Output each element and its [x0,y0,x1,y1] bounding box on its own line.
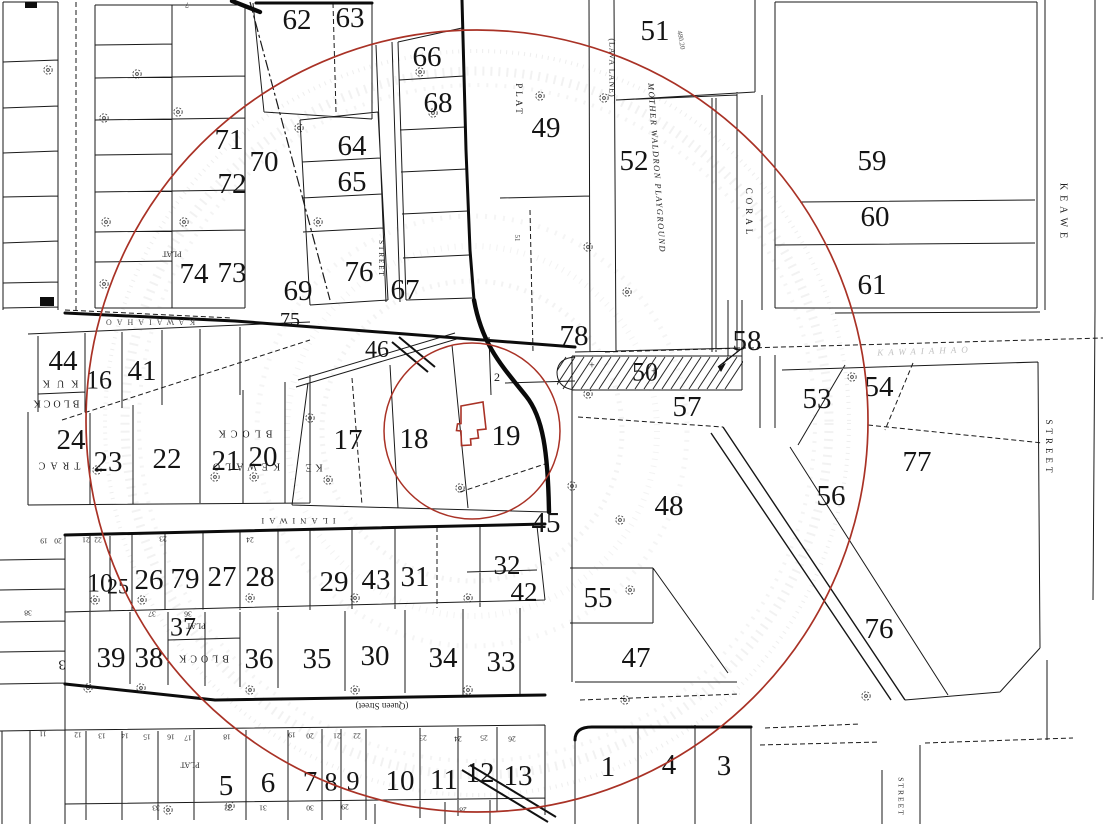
survey-circle-icon [539,95,542,98]
survey-circle-icon [624,699,627,702]
map-label: 60 [861,201,890,233]
map-label: 19 [288,731,296,740]
map-label: 31 [401,561,430,593]
map-label: MOTHER WALDRON PLAYGROUND [646,82,668,254]
map-label: 17 [334,424,363,456]
map-label: 54 [865,371,895,403]
map-label: 33 [487,646,516,678]
map-label: 17 [184,734,192,743]
map-label: 62 [283,4,312,36]
map-label: 48 [655,490,684,522]
survey-circle-icon [253,476,256,479]
map-label: 26 [135,564,164,596]
survey-circle-icon [862,692,870,700]
map-label: 12 [74,731,82,740]
map-label: 23 [159,535,167,544]
survey-circle-icon [138,596,146,604]
map-label: 55 [584,582,613,614]
map-label: 33 [152,804,160,813]
survey-circle-icon [351,686,359,694]
map-label: 61 [858,269,887,301]
map-label: 52 [620,145,649,177]
map-label: 2 [494,370,500,384]
survey-circle-icon [298,127,301,130]
map-label: 71 [215,124,244,156]
survey-circle-icon [584,390,592,398]
map-label: 22 [94,536,102,545]
map-label: 38 [24,609,32,618]
survey-circle-icon [467,597,470,600]
survey-circle-icon [183,221,186,224]
map-label: (Queen Street) [356,701,409,711]
survey-circle-icon [246,594,254,602]
survey-circle-icon [851,376,854,379]
map-label: 19 [40,537,48,546]
survey-circle-icon [327,479,330,482]
map-label: 73 [218,257,247,289]
map-label: 68 [424,87,453,119]
map-label: 7 [185,1,189,10]
map-label: 26 [508,735,516,744]
map-label: STREET [377,240,385,278]
map-label: 32 [224,804,232,813]
map-label: 29 [341,803,349,812]
survey-circle-icon [467,689,470,692]
map-label: 77 [903,446,932,478]
map-label: 43 [362,564,391,596]
map-label: + [589,361,595,372]
survey-circle-icon [317,221,320,224]
map-label: 22 [353,732,361,741]
map-label: 31 [259,804,267,813]
map-label: KUK [36,378,79,389]
map-label: 35 [303,643,332,675]
survey-circle-icon [848,373,856,381]
map-label: 3 [59,657,66,672]
map-label: 72 [218,168,247,200]
map-label: 63 [336,2,365,34]
map-label: 23 [94,446,123,478]
survey-circle-icon [164,806,172,814]
street-labels: PLAT(LAVA LANE)MOTHER WALDRON PLAYGROUND… [31,30,1069,817]
map-label: 24 [454,735,462,744]
map-label: 20 [249,441,278,473]
lot-numbers: 6263666864657172707473766769495152596061… [49,2,932,802]
survey-circle-icon [249,597,252,600]
map-label: KEAWE [1058,183,1069,243]
map-label: 25 [480,734,488,743]
map-label: 13 [98,732,106,741]
survey-circle-icon [100,114,108,122]
survey-circle-icon [103,283,106,286]
survey-circle-icon [141,599,144,602]
map-label: 14 [121,732,129,741]
survey-circle-icon [102,218,110,226]
map-label: BLOCK [214,428,273,439]
map-label: PLAT [514,83,524,117]
solid-building-blobs [25,2,54,306]
map-label: 49 [532,112,561,144]
map-label: 24 [57,424,87,456]
map-label: 18 [400,423,429,455]
map-label: 10 [386,765,415,797]
survey-circle-icon [623,288,631,296]
map-label: 66 [413,41,442,73]
survey-circle-icon [100,280,108,288]
survey-circle-symbols [44,66,870,814]
survey-circle-icon [626,291,629,294]
map-label: 46 [365,337,389,363]
map-label: 13 [504,760,533,792]
map-label: 65 [338,166,367,198]
survey-circle-icon [105,221,108,224]
plat-map-canvas: 1112131415161718192021222324252629303132… [0,0,1103,824]
map-label: 79 [171,563,200,595]
map-label: 19 [492,420,521,452]
map-label: 37 [148,610,156,619]
map-label: 23 [419,734,427,743]
map-label: 56 [817,480,846,512]
map-label: 18 [223,733,231,742]
map-label: 78 [560,320,589,352]
map-label: 42 [511,577,538,607]
map-label: STREET [1044,420,1054,477]
survey-circle-icon [314,218,322,226]
survey-circle-icon [354,597,357,600]
survey-circle-icon [616,516,624,524]
map-label: 28 [459,806,467,815]
map-label: 58 [733,325,762,357]
survey-circle-icon [140,687,143,690]
survey-circle-icon [47,69,50,72]
map-label: 6 [261,767,276,799]
survey-circle-icon [87,687,90,690]
survey-circle-icon [587,393,590,396]
survey-circle-icon [250,473,258,481]
map-label: 5 [219,770,234,802]
map-label: TRAC [34,460,81,471]
map-label: ILANIWAI [256,516,335,526]
map-label: 480.20 [675,30,686,51]
survey-circle-icon [459,487,462,490]
map-label: 20 [306,732,314,741]
survey-circle-icon [536,92,544,100]
map-label: 34 [429,642,459,674]
small-lot-numbers: 1112131415161718192021222324252629303132… [24,1,516,815]
survey-circle-icon [354,689,357,692]
map-label: 16 [167,733,175,742]
map-label: 30 [361,640,390,672]
map-label: PLAT [180,761,199,770]
map-label: 38 [135,642,164,674]
subject-parcel-highlight[interactable] [457,402,487,446]
map-label: 74 [180,258,210,290]
map-label: 57 [673,391,702,423]
map-label: 28 [246,561,275,593]
map-label: 15 [143,733,151,742]
survey-circle-icon [44,66,52,74]
survey-circle-icon [167,809,170,812]
map-label: 51 [641,15,670,47]
map-label: STREET [897,777,906,817]
map-label: BLOCK [31,398,80,409]
survey-circle-icon [174,108,182,116]
survey-circle-icon [464,686,472,694]
map-label: 29 [320,566,349,598]
map-label: 70 [250,146,279,178]
survey-circle-icon [103,117,106,120]
survey-circle-icon [626,586,634,594]
map-label: 21 [212,445,241,477]
map-label: 45 [532,507,561,539]
survey-circle-icon [136,73,139,76]
survey-circle-icon [621,696,629,704]
map-label: 51 [513,235,521,243]
map-label: 69 [284,275,313,307]
map-label: KAWAIAHAO [876,344,973,357]
map-label: 37 [170,613,196,642]
map-label: 20 [54,537,62,546]
map-label: CORAL [744,188,754,239]
map-label: 76 [345,256,374,288]
map-label: 12 [466,757,495,789]
map-label: 76 [865,613,894,645]
map-label: 36 [245,643,274,675]
map-label: 41 [128,355,157,387]
map-label: 53 [803,383,832,415]
survey-circle-icon [177,111,180,114]
survey-circle-icon [865,695,868,698]
map-label: 30 [306,804,314,813]
map-label: 50 [632,358,658,387]
map-label: 11 [39,730,46,739]
map-label: KAWAIAHAO [101,318,195,327]
map-label: 47 [622,642,651,674]
map-label: 32 [494,550,521,580]
survey-circle-icon [94,599,97,602]
map-label: 64 [338,130,368,162]
map-label: (LAVA LANE) [608,38,617,97]
survey-circle-icon [603,97,606,100]
map-label: 44 [49,345,79,377]
survey-circle-icon [629,589,632,592]
map-label: 1 [601,751,616,783]
map-label: 59 [858,145,887,177]
map-label: 11 [430,764,458,796]
map-label: BLOCK [175,653,229,664]
map-label: 21 [82,536,90,545]
map-label: 67 [391,274,420,306]
survey-circle-icon [587,246,590,249]
map-label: 75 [280,309,300,331]
map-label: 3 [717,750,732,782]
map-label: 22 [153,443,182,475]
map-label: KE [301,462,322,473]
map-label: 24 [246,536,254,545]
survey-circle-icon [619,519,622,522]
map-label: 39 [97,642,126,674]
map-label: 27 [208,561,237,593]
map-label: 21 [333,732,341,741]
scanned-plat-map: 1112131415161718192021222324252629303132… [0,0,1103,824]
survey-circle-icon [464,594,472,602]
map-label: 7 [303,766,318,798]
